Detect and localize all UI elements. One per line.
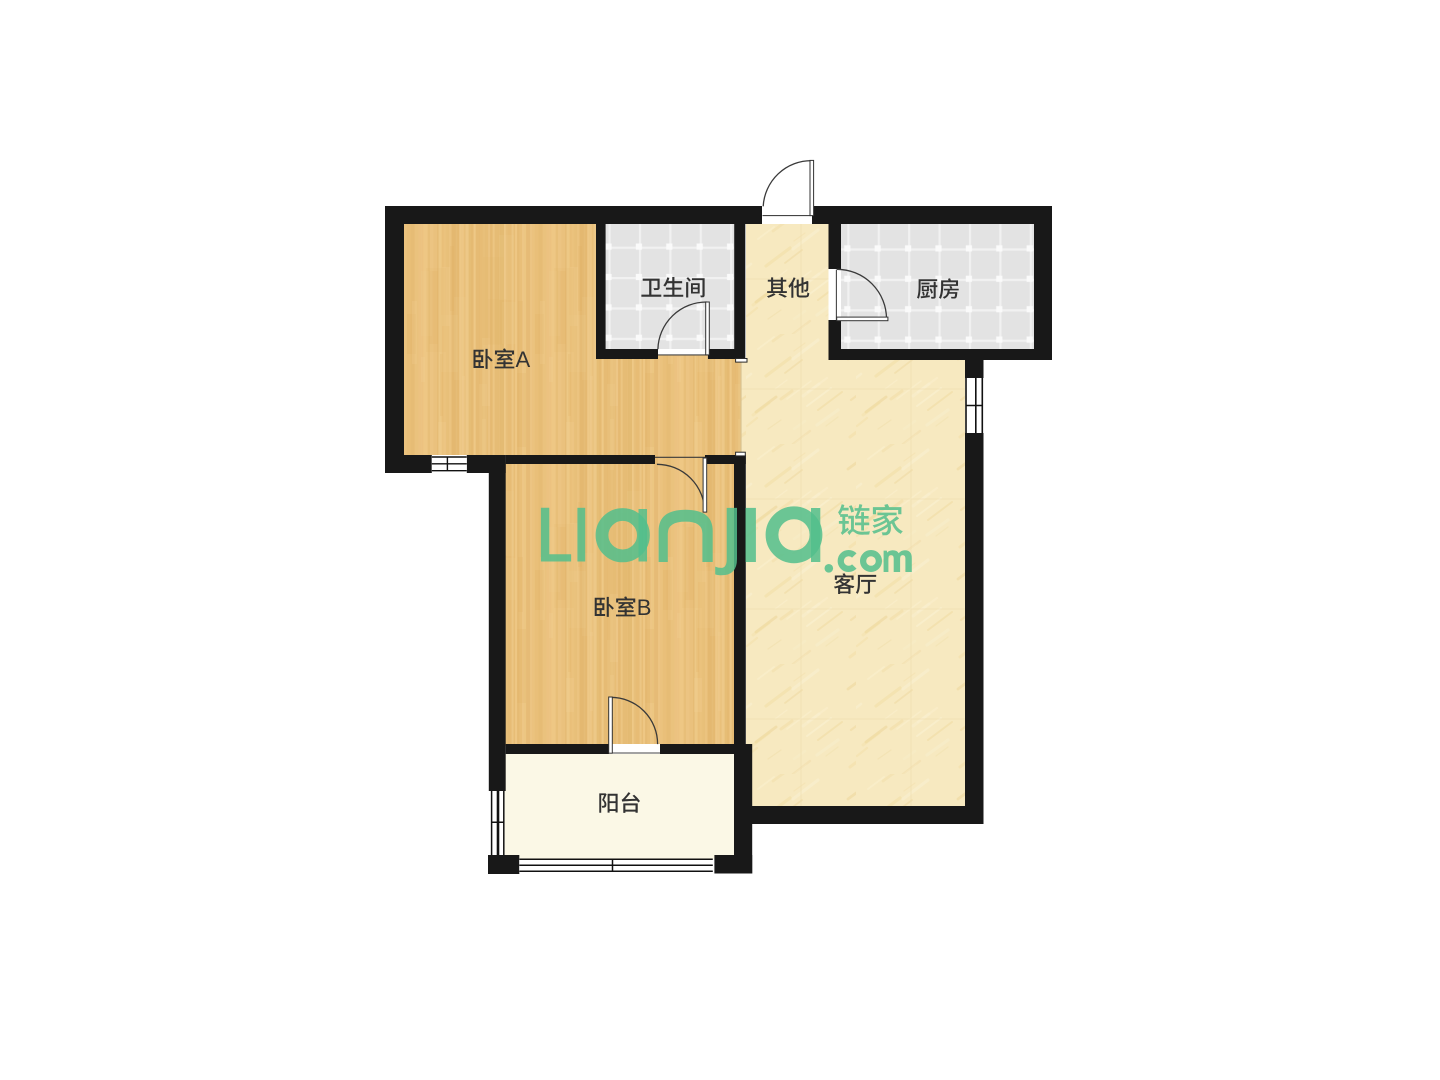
svg-text:A: A (516, 347, 531, 372)
svg-text:B: B (637, 595, 652, 620)
